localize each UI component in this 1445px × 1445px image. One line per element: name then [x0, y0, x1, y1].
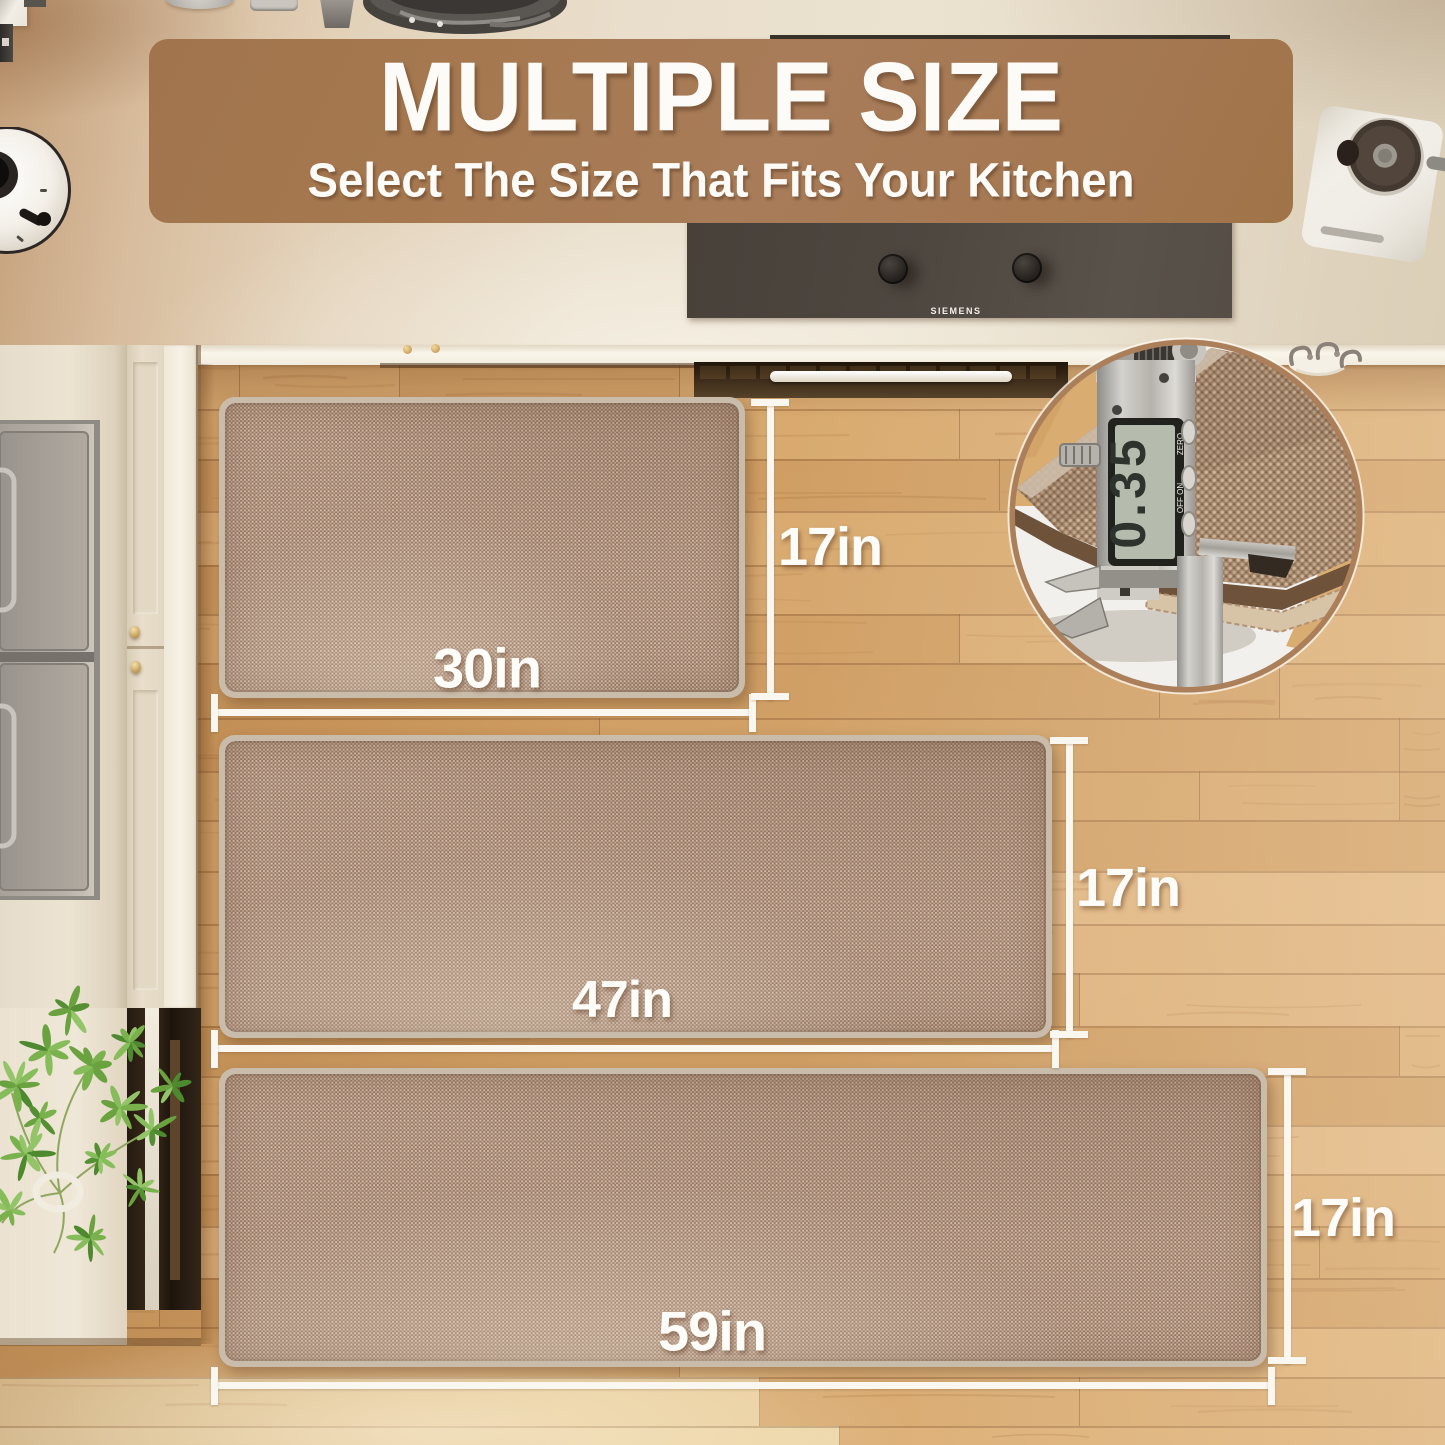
svg-text:0.35: 0.35: [1100, 435, 1156, 548]
